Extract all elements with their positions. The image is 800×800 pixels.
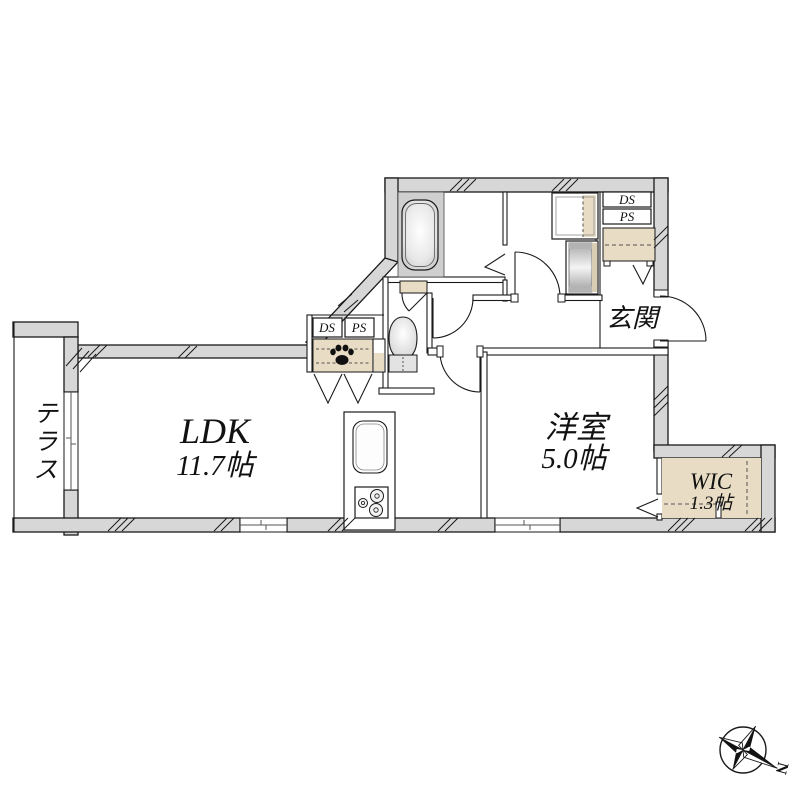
ldk-area: 11.7帖 — [176, 450, 258, 482]
shoe-cabinet-foot-left — [604, 261, 610, 266]
toilet-right-wall — [427, 293, 432, 353]
wall-wic-top — [654, 445, 775, 458]
toilet-overhead-shelf — [400, 281, 427, 293]
ds-label-mid: DS — [318, 320, 335, 335]
wic-label: WIC — [690, 469, 733, 494]
entrance-label: 玄関 — [606, 304, 661, 333]
hall-top-wall-1 — [473, 295, 515, 301]
washbasin — [566, 241, 598, 294]
hall-top-wall-2 — [562, 295, 602, 301]
pet-cabinet-door-left — [314, 374, 342, 403]
wall-ldk-top — [78, 345, 310, 358]
toilet-left-wall — [383, 277, 388, 393]
entrance-door — [660, 296, 706, 341]
washing-machine-pan — [552, 193, 598, 239]
kitchen-sink — [353, 421, 387, 473]
wall-ldk-left-upper — [64, 337, 78, 392]
ldk-bedroom-partition — [481, 352, 487, 518]
toilet-bottom-wall — [379, 388, 434, 394]
wall-right-upper — [654, 178, 668, 296]
kitchen — [344, 412, 395, 530]
wic-folding-door — [637, 499, 658, 517]
ldk-bottom-window — [240, 518, 287, 532]
shoe-cabinet-v-mark — [633, 265, 652, 284]
floorplan-canvas: LDK 11.7帖 洋室 5.0帖 WIC 1.3帖 玄関 テラス DS PS … — [0, 0, 800, 800]
bathtub — [402, 200, 438, 270]
pet-cabinet-door-right — [344, 374, 372, 403]
bath-folding-door — [485, 254, 505, 275]
compass-north-label: N — [772, 760, 792, 776]
ds-label: DS — [618, 192, 635, 207]
ps-label-mid: PS — [351, 320, 367, 335]
bedroom-bottom-window — [495, 518, 560, 532]
wall-wic-right — [761, 445, 775, 532]
terrace-label: テラス — [30, 400, 57, 484]
washroom-door — [511, 252, 565, 302]
toilet-room — [389, 281, 427, 372]
compass: N — [709, 713, 791, 787]
washroom — [552, 193, 598, 294]
bedroom-label: 洋室 — [545, 410, 611, 445]
bedroom-door — [437, 346, 483, 392]
kitchen-stove — [355, 487, 388, 518]
hall-door — [433, 298, 473, 338]
ps-label: PS — [619, 209, 635, 224]
floorplan-drawing: LDK 11.7帖 洋室 5.0帖 WIC 1.3帖 玄関 テラス DS PS … — [0, 0, 800, 800]
wall-top — [385, 178, 668, 192]
toilet-bowl — [389, 317, 417, 359]
wall-terrace-top — [13, 322, 78, 337]
compass-star — [709, 713, 790, 787]
bedroom-area: 5.0帖 — [541, 443, 610, 475]
terrace-sliding-window — [64, 392, 78, 490]
bath-laundry-wall-upper — [503, 192, 507, 245]
wall-left-upper-block — [385, 178, 398, 262]
wall-bottom-3 — [560, 518, 775, 532]
bathroom — [398, 192, 505, 277]
wic-left-wall-upper — [657, 458, 662, 494]
wic-area: 1.3帖 — [690, 493, 736, 514]
ldk-label: LDK — [179, 411, 252, 451]
toilet-door — [402, 293, 427, 311]
hall-bottom-wall-2 — [480, 348, 668, 355]
